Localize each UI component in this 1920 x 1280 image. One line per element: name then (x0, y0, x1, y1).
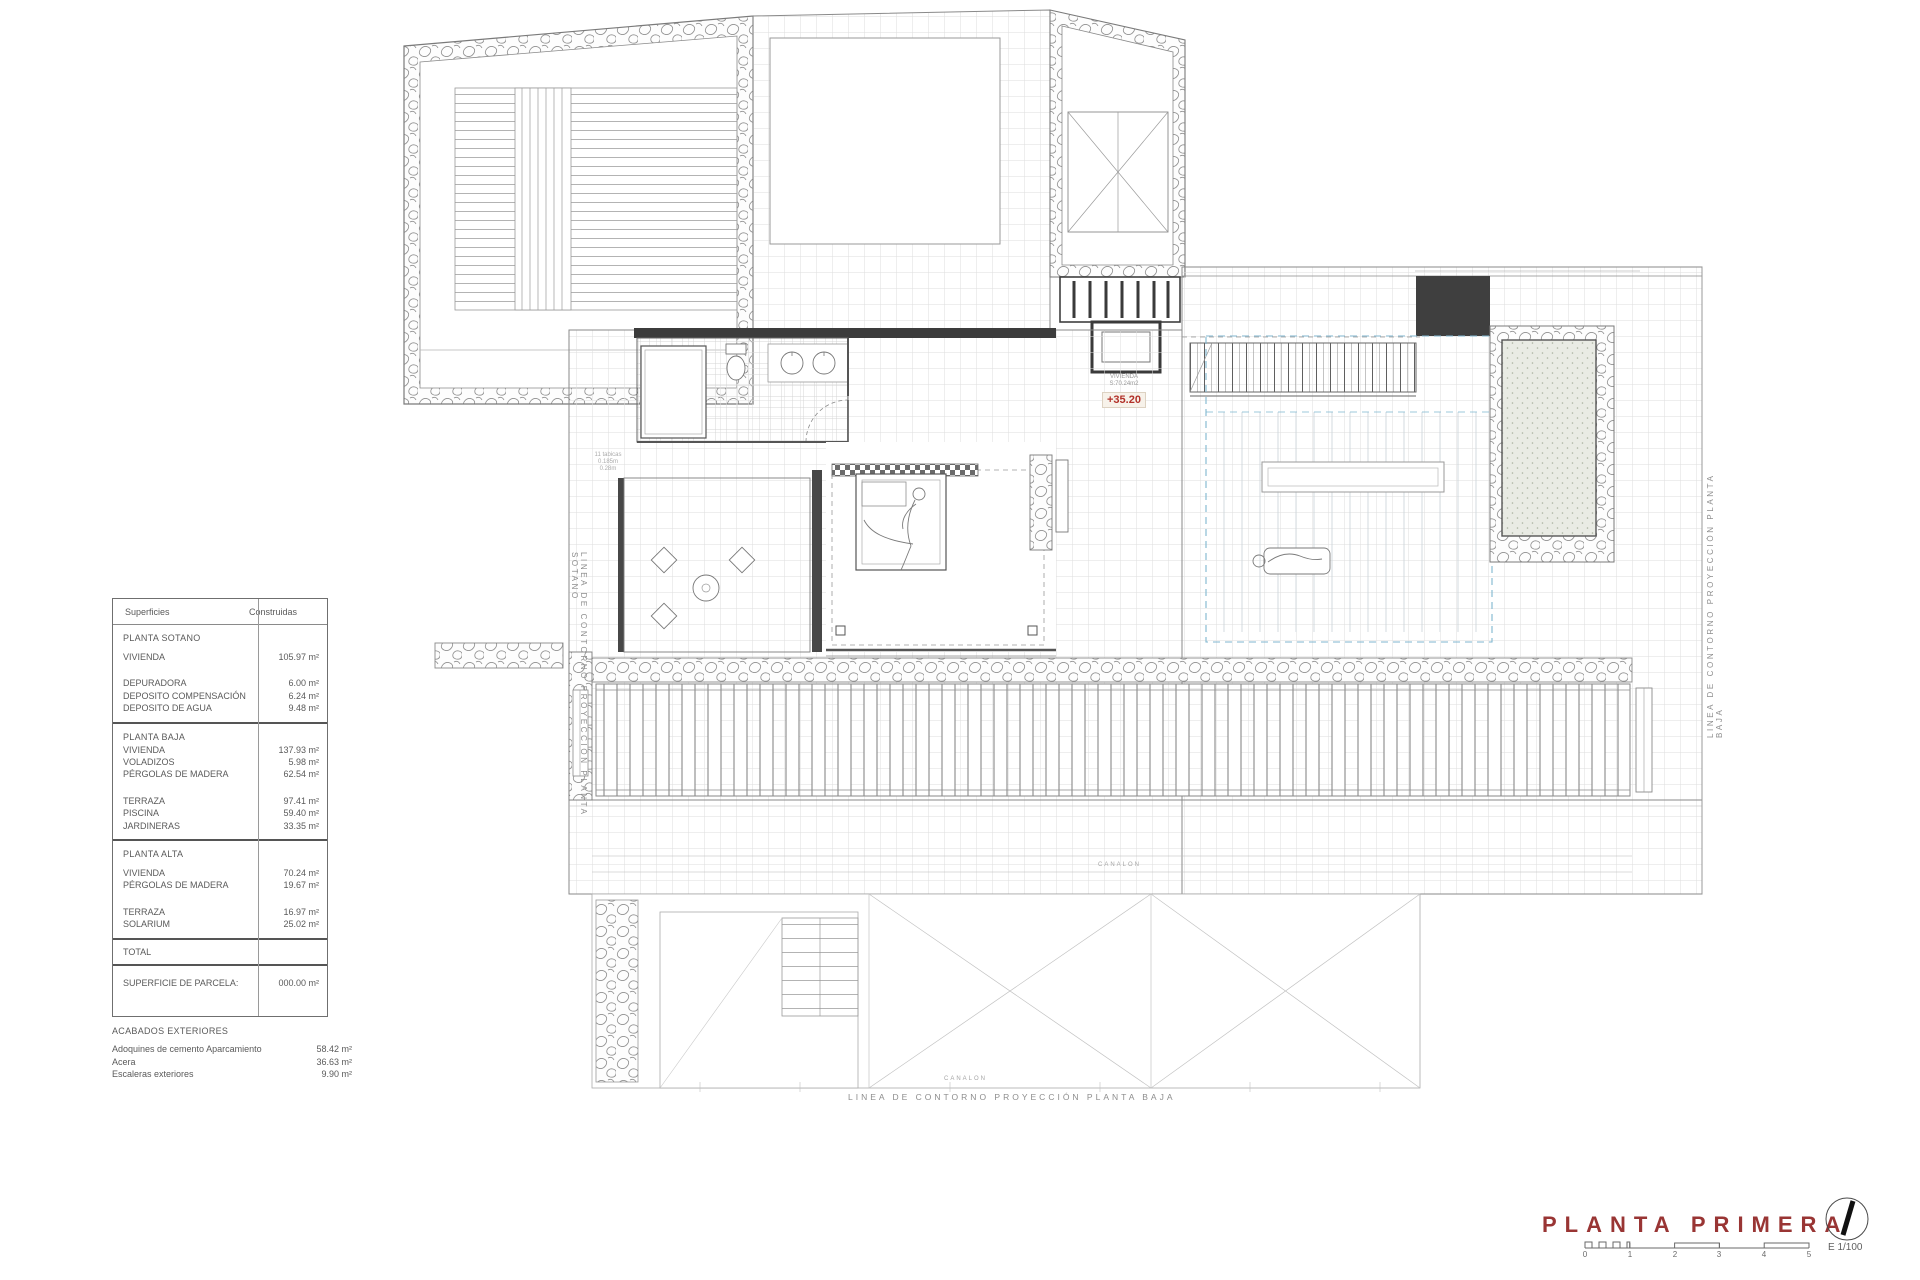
scale-tick: 0 (1580, 1250, 1590, 1259)
finish-row: Adoquines de cemento Aparcamiento 58.42 … (112, 1043, 352, 1056)
bed (856, 474, 946, 570)
finish-row: Escaleras exteriores 9.90 m² (112, 1068, 352, 1081)
table-row: TERRAZA 16.97 m² (113, 906, 327, 918)
scale-tick: 3 (1714, 1250, 1724, 1259)
stone-band-left (435, 643, 563, 668)
table-row: DEPOSITO DE AGUA 9.48 m² (113, 702, 327, 714)
solarium (1490, 326, 1614, 562)
table-row: PÉRGOLAS DE MADERA 19.67 m² (113, 879, 327, 891)
section-planta-baja: PLANTA BAJA VIVIENDA 137.93 m² VOLADIZOS… (113, 724, 327, 841)
contour-label-baja-right: LINEA DE CONTORNO PROYECCIÓN PLANTA BAJA (1706, 448, 1724, 738)
top-centre-roof (753, 10, 1050, 330)
stair-note: 11 tabicas 0.185m 0.28m (578, 452, 638, 473)
parcel-value: 000.00 m² (255, 978, 319, 988)
table-row: VIVIENDA 137.93 m² (113, 744, 327, 756)
col-construidas: Construidas (243, 607, 313, 617)
title-block: PLANTA PRIMERA 0 1 2 3 4 5 E 1/100 (1540, 1192, 1900, 1274)
table-header: Superficies Construidas (113, 599, 327, 625)
section-planta-alta: PLANTA ALTA VIVIENDA 70.24 m² PÉRGOLAS D… (113, 841, 327, 938)
table-row: DEPURADORA 6.00 m² (113, 677, 327, 689)
left-terrace (618, 470, 822, 652)
exterior-finishes: ACABADOS EXTERIORES Adoquines de cemento… (112, 1026, 352, 1081)
contour-label-sotano: LINEA DE CONTORNO PROYECCIÓN PLANTA SOTA… (570, 552, 588, 862)
table-row: DEPOSITO COMPENSACIÓN 6.24 m² (113, 690, 327, 702)
parcel-label: SUPERFICIE DE PARCELA: (123, 978, 238, 988)
scale-ratio-label: E 1/100 (1828, 1242, 1862, 1253)
scale-tick: 2 (1670, 1250, 1680, 1259)
bedroom (826, 442, 1068, 656)
scale-tick: 1 (1625, 1250, 1635, 1259)
section-title: PLANTA BAJA (113, 729, 327, 744)
table-row: PÉRGOLAS DE MADERA 62.54 m² (113, 768, 327, 780)
table-column-divider (258, 599, 259, 1016)
contour-label-baja-bottom: LINEA DE CONTORNO PROYECCIÓN PLANTA BAJA (848, 1092, 1176, 1102)
gutter-label-1: CANALON (1098, 862, 1141, 868)
table-row: PISCINA 59.40 m² (113, 807, 327, 819)
parcel-row: SUPERFICIE DE PARCELA: 000.00 m² (113, 966, 327, 1000)
col-superficies: Superficies (125, 607, 170, 617)
finish-row: Acera 36.63 m² (112, 1056, 352, 1069)
lower-roof-projection (592, 894, 1420, 1092)
room-area: S:70.24m2 (1096, 381, 1152, 388)
top-right-roof-block (1050, 10, 1185, 277)
exterior-finishes-title: ACABADOS EXTERIORES (112, 1026, 352, 1036)
level-marker: +35.20 (1102, 392, 1146, 408)
gutter-label-2: CANALON (944, 1076, 987, 1082)
section-title: PLANTA ALTA (113, 846, 327, 861)
areas-table: Superficies Construidas PLANTA SOTANO VI… (112, 598, 328, 1017)
sun-lounger (1253, 548, 1330, 574)
table-row: VIVIENDA 70.24 m² (113, 867, 327, 879)
sheet-title: PLANTA PRIMERA (1542, 1212, 1848, 1238)
section-title: PLANTA SOTANO (113, 630, 327, 645)
room-label: VIVIENDA S:70.24m2 (1096, 374, 1152, 388)
section-planta-sotano: PLANTA SOTANO VIVIENDA 105.97 m² DEPURAD… (113, 625, 327, 724)
graphic-scale-bar (1583, 1236, 1815, 1252)
scale-tick: 4 (1759, 1250, 1769, 1259)
room-name: VIVIENDA (1096, 374, 1152, 381)
table-row: SOLARIUM 25.02 m² (113, 918, 327, 930)
north-arrow-icon (1824, 1194, 1870, 1242)
table-row: TERRAZA 97.41 m² (113, 795, 327, 807)
table-row: VOLADIZOS 5.98 m² (113, 756, 327, 768)
scale-tick: 5 (1804, 1250, 1814, 1259)
total-row: TOTAL (113, 938, 327, 966)
table-row: JARDINERAS 33.35 m² (113, 820, 327, 832)
table-row: VIVIENDA 105.97 m² (113, 651, 327, 663)
